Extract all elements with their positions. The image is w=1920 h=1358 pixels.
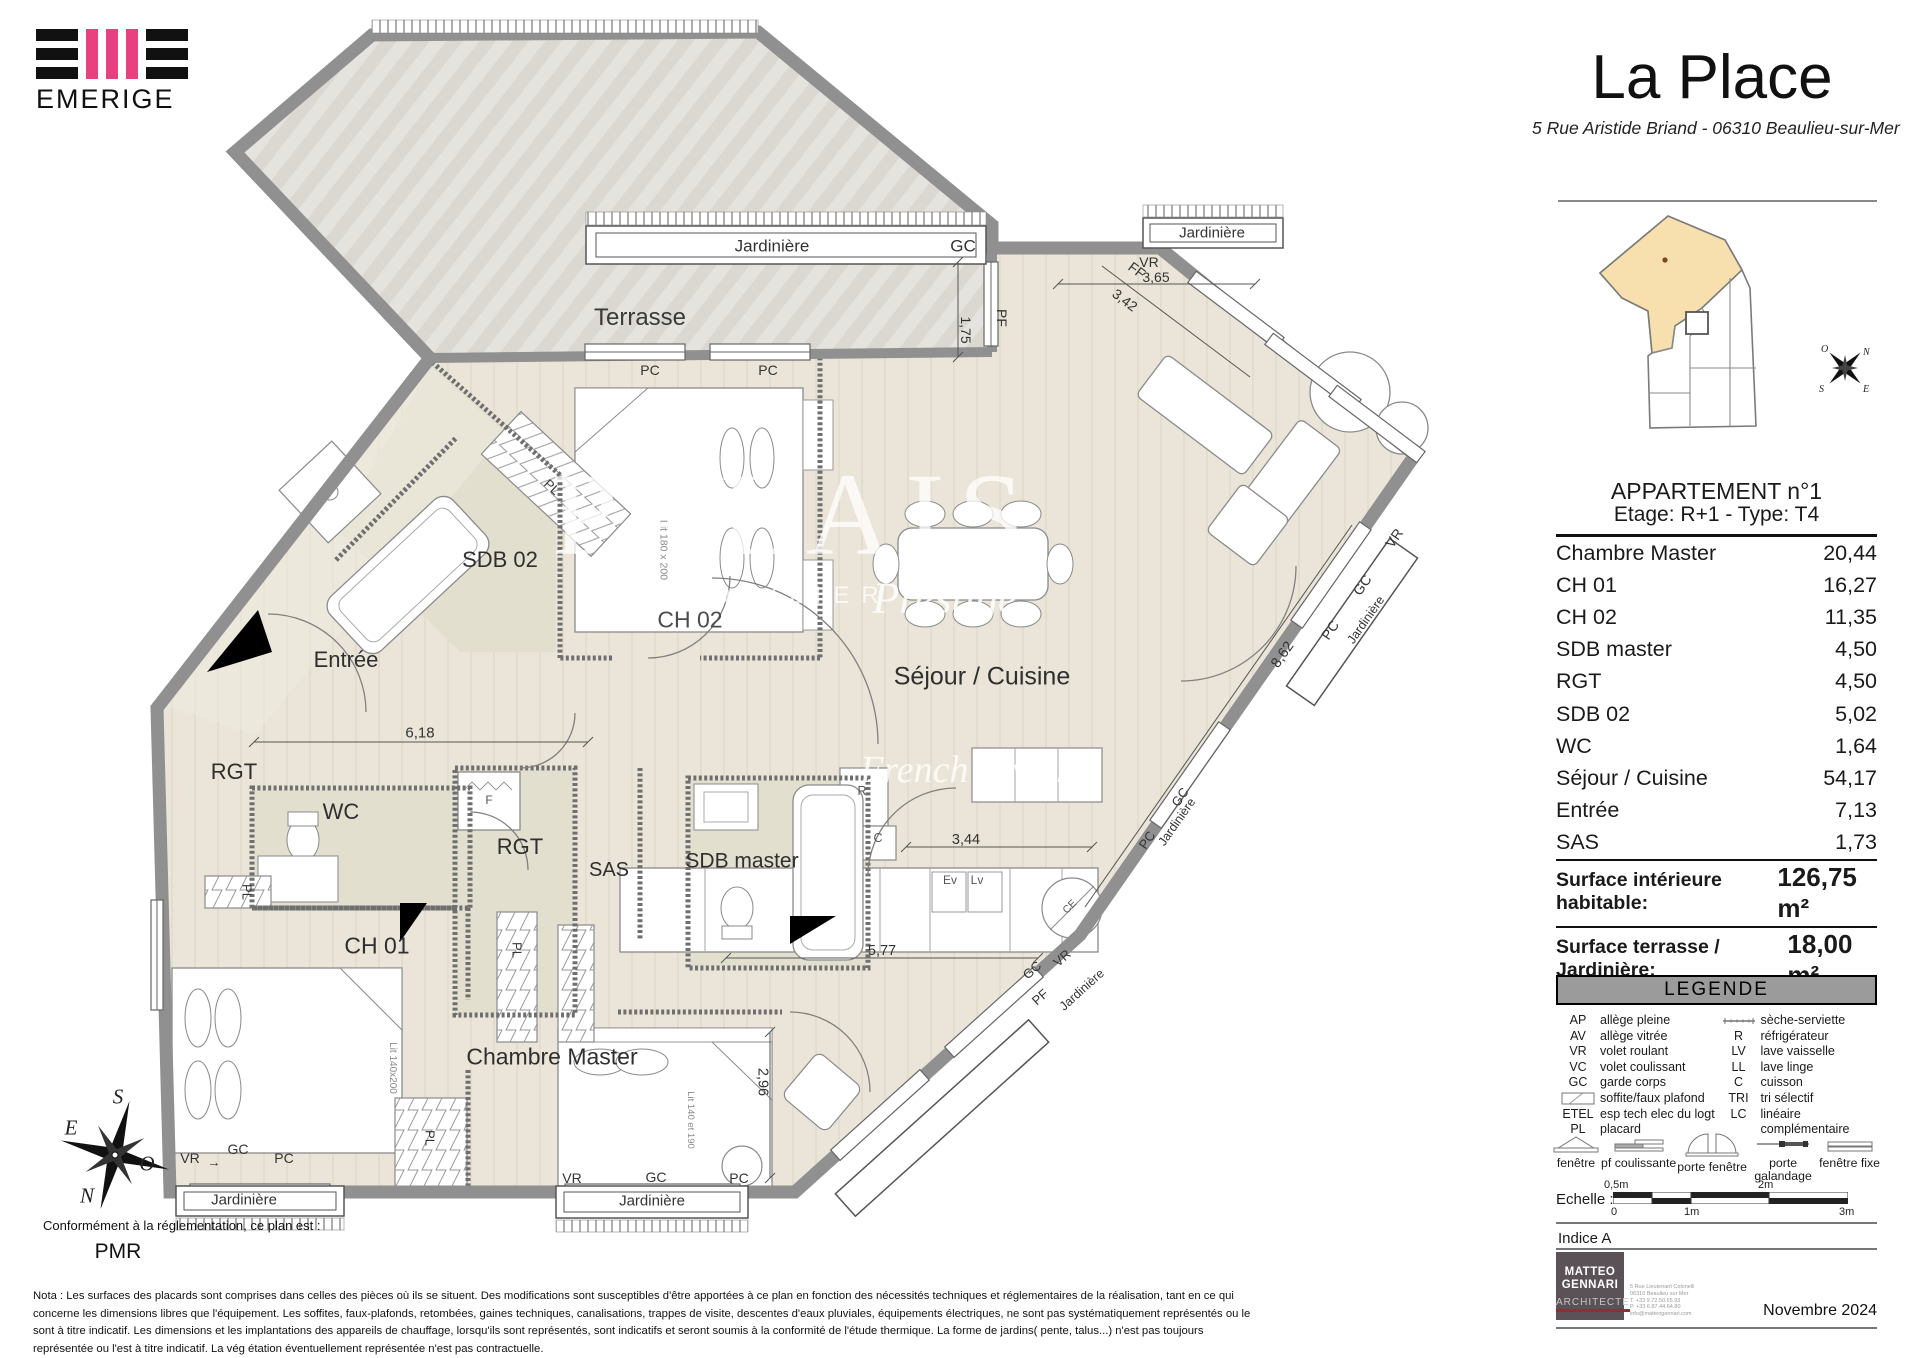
legend-desc: sèche-serviette — [1761, 1013, 1878, 1029]
legend-abbr: TRI — [1717, 1091, 1761, 1107]
row-value: 1,73 — [1835, 830, 1877, 855]
table-row: SDB master4,50 — [1556, 634, 1877, 666]
table-row: WC1,64 — [1556, 730, 1877, 762]
architect-contact: 5 Rue Lieutenant Colonelli 06310 Beaulie… — [1630, 1284, 1695, 1318]
table-row: Chambre Master20,44 — [1556, 537, 1877, 569]
unit-subtitle: Etage: R+1 - Type: T4 — [1556, 503, 1877, 527]
pc-label-terrace-2: PC — [758, 363, 777, 377]
bed-label-140a: Lit 140x200 — [387, 1042, 397, 1094]
legend-abbr: AP — [1556, 1013, 1600, 1029]
compass-o: O — [139, 1154, 154, 1175]
architect-title-line: ARCHITECTE — [1556, 1297, 1630, 1312]
plan-date: Novembre 2024 — [1763, 1302, 1877, 1320]
jardiniere-label-top-right: Jardinière — [1179, 226, 1245, 241]
architect-block: MATTEO GENNARI ARCHITECTE 5 Rue Lieutena… — [1556, 1252, 1877, 1322]
nota-text: Nota : Les surfaces des placards sont co… — [33, 1288, 1261, 1358]
room-label-ch02: CH 02 — [657, 609, 722, 632]
row-label: WC — [1556, 734, 1592, 759]
legend-abbr: LV — [1717, 1044, 1761, 1060]
fridge-label: F — [485, 794, 492, 806]
locator-map: O N S E — [1590, 208, 1890, 448]
indice-label: Indice A — [1558, 1230, 1611, 1247]
legend-right-column: sèche-serviette Rréfrigérateur LVlave va… — [1717, 1013, 1878, 1138]
scale-tick: 0 — [1611, 1206, 1617, 1218]
row-value: 4,50 — [1835, 669, 1877, 694]
legend-desc: volet coulissant — [1600, 1060, 1717, 1076]
compass-n: N — [80, 1186, 94, 1207]
mini-compass-e: E — [1862, 384, 1869, 395]
legend-desc: esp tech elec du logt — [1600, 1107, 1717, 1123]
surface-interior-value: 126,75 m² — [1777, 862, 1877, 924]
bed-label-140b: Lit 140 et 190 — [685, 1091, 695, 1149]
row-label: RGT — [1556, 669, 1601, 694]
legend-desc: lave vaisselle — [1761, 1044, 1878, 1060]
jardiniere-label-bottom-center: Jardinière — [619, 1194, 685, 1209]
room-label-chambre-master: Chambre Master — [466, 1046, 637, 1069]
seche-serviette-icon — [1717, 1013, 1761, 1029]
legend-abbr: C — [1717, 1075, 1761, 1091]
room-label-ch01: CH 01 — [344, 935, 409, 958]
table-row: SDB 025,02 — [1556, 698, 1877, 730]
room-label-entree: Entrée — [314, 649, 379, 671]
gc-label-bottom-center: GC — [646, 1170, 667, 1184]
surface-interior-label: Surface intérieure habitable: — [1556, 869, 1777, 915]
room-label-wc: WC — [323, 801, 360, 823]
kitchen-ev-label: Ev — [943, 874, 957, 886]
row-value: 7,13 — [1835, 798, 1877, 823]
symbol-label: porte fenêtre — [1677, 1160, 1747, 1174]
scale-label: Echelle : — [1556, 1191, 1614, 1208]
row-label: Séjour / Cuisine — [1556, 766, 1708, 791]
dim-618: 6,18 — [405, 726, 434, 741]
dim-577: 5,77 — [868, 944, 896, 959]
legend-abbr: VR — [1556, 1044, 1600, 1060]
areas-table: Chambre Master20,44 CH 0116,27 CH 0211,3… — [1556, 534, 1877, 995]
row-value: 4,50 — [1835, 637, 1877, 662]
legend-desc: allège pleine — [1600, 1013, 1717, 1029]
legend-desc: tri sélectif — [1761, 1091, 1878, 1107]
legend-abbr: ETEL — [1556, 1107, 1600, 1123]
mini-compass-n: N — [1862, 347, 1871, 358]
row-value: 16,27 — [1823, 573, 1877, 598]
legend-desc: volet roulant — [1600, 1044, 1717, 1060]
contact-line: 5 Rue Lieutenant Colonelli — [1630, 1284, 1695, 1291]
row-label: Entrée — [1556, 798, 1619, 823]
mini-compass-o: O — [1821, 344, 1828, 355]
table-row: Séjour / Cuisine54,17 — [1556, 762, 1877, 794]
room-label-rgt-2: RGT — [497, 836, 543, 858]
symbol-key: fenêtre pf coulissante porte fenêtre por… — [1552, 1132, 1880, 1182]
vr-label-bottom-center: VR — [562, 1171, 581, 1185]
dim-344: 3,44 — [952, 833, 980, 848]
pc-label-bottom-center: PC — [729, 1171, 748, 1185]
scale-block: Echelle : 0,5m 2m 0 1m 3m — [1556, 1183, 1877, 1217]
symbol-fenetre-fixe: fenêtre fixe — [1819, 1132, 1880, 1182]
legend-desc: cuisson — [1761, 1075, 1878, 1091]
legend-abbr: LL — [1717, 1060, 1761, 1076]
pf-label-terrace: PF — [995, 309, 1009, 327]
pl-label-wc: PL — [241, 884, 254, 900]
legend-abbr: AV — [1556, 1029, 1600, 1045]
page-title: La Place — [1591, 42, 1832, 113]
scale-tick: 3m — [1839, 1206, 1854, 1218]
mini-compass-s: S — [1819, 384, 1824, 395]
row-label: SDB master — [1556, 637, 1672, 662]
legend-desc: lave linge — [1761, 1060, 1878, 1076]
row-label: CH 02 — [1556, 605, 1617, 630]
compass-e: E — [65, 1118, 78, 1139]
scale-tick: 0,5m — [1604, 1179, 1628, 1191]
legend-desc: garde corps — [1600, 1075, 1717, 1091]
pc-label-terrace-1: PC — [640, 363, 659, 377]
emerige-logo: EMERIGE — [36, 28, 188, 115]
gc-label-top: GC — [950, 238, 976, 255]
arrow-bottom-left: → — [208, 1156, 221, 1169]
row-value: 5,02 — [1835, 702, 1877, 727]
symbol-label: pf coulissante — [1601, 1156, 1676, 1170]
jardiniere-label-top: Jardinière — [735, 238, 810, 255]
symbol-porte-galandage: porte galandage — [1748, 1132, 1818, 1182]
architect-name-line: MATTEO — [1556, 1266, 1624, 1279]
unit-title: APPARTEMENT n°1 — [1556, 478, 1877, 505]
surface-interior-row: Surface intérieure habitable: 126,75 m² — [1556, 859, 1877, 926]
room-label-sejour: Séjour / Cuisine — [894, 665, 1070, 690]
pl-label-mid: PL — [511, 942, 524, 958]
soffite-icon — [1556, 1091, 1600, 1107]
gc-label-bottom-left: GC — [228, 1142, 249, 1156]
row-label: SAS — [1556, 830, 1599, 855]
row-label: Chambre Master — [1556, 541, 1716, 566]
jardiniere-label-bottom-left: Jardinière — [211, 1193, 277, 1208]
scale-tick: 2m — [1758, 1179, 1773, 1191]
symbol-porte-fenetre: porte fenêtre — [1677, 1132, 1747, 1182]
divider — [1556, 1248, 1877, 1250]
architect-name-line: GENNARI — [1556, 1279, 1624, 1292]
dim-365: 3,65 — [1142, 270, 1169, 284]
address-line: 5 Rue Aristide Briand - 06310 Beaulieu-s… — [1532, 118, 1900, 139]
room-label-sdb02: SDB 02 — [462, 549, 538, 571]
scale-tick: 1m — [1684, 1206, 1699, 1218]
dim-175: 1,75 — [959, 316, 973, 343]
room-label-sas: SAS — [589, 860, 629, 880]
pmr-label: PMR — [95, 1240, 142, 1264]
legend: LEGENDE APallège pleine AVallège vitrée … — [1556, 975, 1877, 1138]
architect-logo: MATTEO GENNARI ARCHITECTE — [1556, 1252, 1624, 1320]
contact-line: P. +33 6.87.44.64.80 — [1630, 1304, 1695, 1311]
divider — [1556, 1327, 1877, 1329]
kitchen-c-label: C — [873, 832, 882, 845]
row-label: CH 01 — [1556, 573, 1617, 598]
room-label-sdb-master: SDB master — [685, 851, 798, 872]
table-row: Entrée7,13 — [1556, 795, 1877, 827]
divider — [1558, 200, 1877, 202]
legend-abbr: GC — [1556, 1075, 1600, 1091]
row-value: 20,44 — [1823, 541, 1877, 566]
pmr-intro: Conformément à la réglementation, ce pla… — [43, 1218, 320, 1233]
divider — [1556, 1222, 1877, 1224]
room-label-terrasse: Terrasse — [594, 306, 686, 330]
row-label: SDB 02 — [1556, 702, 1630, 727]
kitchen-r-label: R — [857, 785, 866, 798]
table-row: CH 0116,27 — [1556, 569, 1877, 601]
symbol-label: fenêtre fixe — [1819, 1156, 1880, 1170]
legend-abbr: R — [1717, 1029, 1761, 1045]
row-value: 1,64 — [1835, 734, 1877, 759]
emerige-logo-mark — [36, 28, 188, 80]
symbol-pf-coulissante: pf coulissante — [1601, 1132, 1676, 1182]
room-label-rgt-1: RGT — [211, 761, 257, 783]
compass-s: S — [113, 1087, 124, 1108]
legend-title: LEGENDE — [1556, 975, 1877, 1005]
legend-abbr: VC — [1556, 1060, 1600, 1076]
compass-rose — [35, 1080, 185, 1220]
kitchen-lv-label: Lv — [971, 874, 984, 886]
pl-label-low: PL — [424, 1130, 437, 1146]
symbol-fenetre: fenêtre — [1552, 1132, 1600, 1182]
table-row: SAS1,73 — [1556, 827, 1877, 859]
legend-desc: réfrigérateur — [1761, 1029, 1878, 1045]
contact-line: T. +33 9.72.50.65.93 — [1630, 1298, 1695, 1305]
symbol-label: fenêtre — [1557, 1156, 1595, 1170]
contact-line: info@matteogennari.com — [1630, 1311, 1695, 1318]
dim-296: 2,96 — [755, 1068, 770, 1096]
bed-label-180: Lit 180 x 200 — [658, 520, 669, 580]
pc-label-bottom-left: PC — [274, 1151, 293, 1165]
legend-desc: soffite/faux plafond — [1600, 1091, 1717, 1107]
table-row: RGT4,50 — [1556, 666, 1877, 698]
contact-line: 06310 Beaulieu sur Mer — [1630, 1291, 1695, 1298]
row-value: 54,17 — [1823, 766, 1877, 791]
legend-left-column: APallège pleine AVallège vitrée VRvolet … — [1556, 1013, 1717, 1138]
emerige-brand-text: EMERIGE — [36, 84, 188, 115]
legend-desc: allège vitrée — [1600, 1029, 1717, 1045]
row-value: 11,35 — [1825, 605, 1877, 630]
table-row: CH 0211,35 — [1556, 601, 1877, 633]
